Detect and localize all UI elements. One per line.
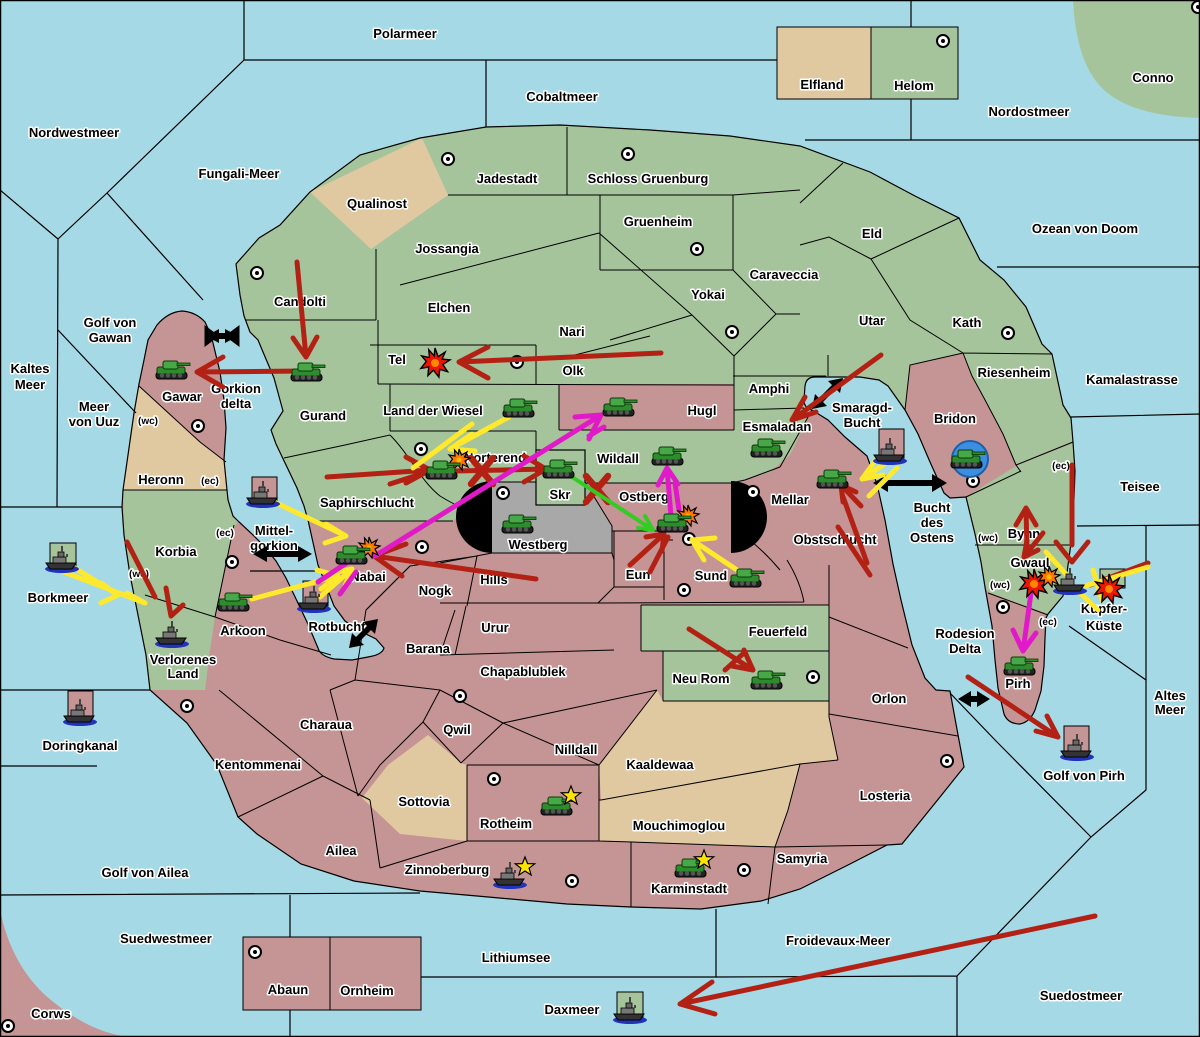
svg-text:Gwaul: Gwaul: [1010, 555, 1049, 570]
svg-text:Elchen: Elchen: [428, 300, 471, 315]
svg-text:Gawan: Gawan: [89, 330, 132, 345]
svg-text:Meer: Meer: [1155, 702, 1185, 717]
svg-text:Altes: Altes: [1154, 688, 1186, 703]
svg-text:Conno: Conno: [1132, 70, 1173, 85]
svg-text:Saphirschlucht: Saphirschlucht: [320, 495, 415, 510]
svg-text:Feuerfeld: Feuerfeld: [749, 624, 808, 639]
svg-text:Utar: Utar: [859, 313, 885, 328]
svg-text:Nilldall: Nilldall: [555, 742, 598, 757]
svg-text:Ornheim: Ornheim: [340, 983, 393, 998]
svg-text:Mittel-: Mittel-: [255, 523, 293, 538]
svg-text:Tel: Tel: [388, 352, 406, 367]
svg-text:Charaua: Charaua: [300, 717, 353, 732]
svg-text:Helom: Helom: [894, 78, 934, 93]
svg-text:Korbia: Korbia: [155, 544, 197, 559]
svg-text:Sottovia: Sottovia: [398, 794, 450, 809]
svg-text:Bridon: Bridon: [934, 411, 976, 426]
svg-text:Losteria: Losteria: [860, 788, 911, 803]
svg-text:Golf von: Golf von: [84, 315, 137, 330]
svg-text:Barana: Barana: [406, 641, 451, 656]
svg-text:(ec): (ec): [1052, 461, 1070, 472]
svg-text:Schloss Gruenburg: Schloss Gruenburg: [588, 171, 709, 186]
svg-text:Kamalastrasse: Kamalastrasse: [1086, 372, 1178, 387]
svg-text:Nogk: Nogk: [419, 583, 452, 598]
svg-text:Caraveccia: Caraveccia: [750, 267, 819, 282]
svg-text:Suedwestmeer: Suedwestmeer: [120, 931, 212, 946]
svg-text:Amphi: Amphi: [749, 381, 789, 396]
svg-text:Esmaladan: Esmaladan: [743, 419, 812, 434]
svg-text:Riesenheim: Riesenheim: [978, 365, 1051, 380]
svg-text:Skr: Skr: [550, 487, 571, 502]
svg-text:Smaragd-: Smaragd-: [832, 400, 892, 415]
svg-text:Jossangia: Jossangia: [415, 241, 479, 256]
svg-text:(ec): (ec): [201, 476, 219, 487]
svg-text:Urur: Urur: [481, 620, 508, 635]
svg-text:Wildall: Wildall: [597, 451, 639, 466]
svg-text:Karminstadt: Karminstadt: [651, 881, 728, 896]
svg-text:Zinnoberburg: Zinnoberburg: [405, 862, 490, 877]
svg-text:Fungali-Meer: Fungali-Meer: [199, 166, 280, 181]
svg-text:Gurand: Gurand: [300, 408, 346, 423]
svg-text:Land der Wiesel: Land der Wiesel: [383, 403, 483, 418]
svg-text:Rodesion: Rodesion: [935, 626, 994, 641]
svg-text:Ozean von Doom: Ozean von Doom: [1032, 221, 1138, 236]
svg-text:Bucht: Bucht: [844, 415, 882, 430]
svg-text:Kaaldewaa: Kaaldewaa: [626, 757, 694, 772]
svg-text:Westberg: Westberg: [509, 537, 568, 552]
svg-text:(wc): (wc): [990, 580, 1010, 591]
svg-text:Eld: Eld: [862, 226, 882, 241]
svg-text:Orlon: Orlon: [872, 691, 907, 706]
svg-text:Olk: Olk: [563, 363, 585, 378]
svg-text:Kentommenai: Kentommenai: [215, 757, 301, 772]
svg-text:Qualinost: Qualinost: [347, 196, 408, 211]
svg-text:Borkmeer: Borkmeer: [28, 590, 89, 605]
svg-text:(wc): (wc): [978, 533, 998, 544]
svg-text:Golf von Pirh: Golf von Pirh: [1043, 768, 1125, 783]
svg-text:Gawar: Gawar: [162, 389, 202, 404]
svg-text:Rotheim: Rotheim: [480, 816, 532, 831]
svg-text:delta: delta: [221, 396, 252, 411]
svg-text:Nordwestmeer: Nordwestmeer: [29, 125, 119, 140]
svg-text:Heronn: Heronn: [138, 472, 184, 487]
svg-text:Abaun: Abaun: [268, 982, 309, 997]
svg-text:Cobaltmeer: Cobaltmeer: [526, 89, 598, 104]
svg-text:Teisee: Teisee: [1120, 479, 1160, 494]
svg-text:Gruenheim: Gruenheim: [624, 214, 693, 229]
svg-text:(ec): (ec): [1039, 617, 1057, 628]
svg-text:Daxmeer: Daxmeer: [545, 1002, 600, 1017]
svg-text:Suedostmeer: Suedostmeer: [1040, 988, 1122, 1003]
svg-text:Bucht: Bucht: [914, 500, 952, 515]
svg-text:des: des: [921, 515, 943, 530]
svg-text:Ostens: Ostens: [910, 530, 954, 545]
svg-text:Ostberg: Ostberg: [619, 489, 669, 504]
svg-text:Eun: Eun: [626, 567, 651, 582]
svg-text:Hugl: Hugl: [688, 403, 717, 418]
svg-text:Froidevaux-Meer: Froidevaux-Meer: [786, 933, 890, 948]
svg-text:Verlorenes: Verlorenes: [150, 652, 217, 667]
svg-text:Obstschlucht: Obstschlucht: [793, 532, 877, 547]
svg-text:Nari: Nari: [559, 324, 584, 339]
svg-text:Neu Rom: Neu Rom: [672, 671, 729, 686]
svg-text:Lithiumsee: Lithiumsee: [482, 950, 551, 965]
svg-text:Corws: Corws: [31, 1006, 71, 1021]
svg-text:Sund: Sund: [695, 568, 728, 583]
svg-text:Delta: Delta: [949, 641, 982, 656]
svg-text:Ailea: Ailea: [325, 843, 357, 858]
svg-text:Jadestadt: Jadestadt: [477, 171, 538, 186]
svg-text:Doringkanal: Doringkanal: [42, 738, 117, 753]
svg-text:Meer: Meer: [15, 377, 45, 392]
svg-text:Kaltes: Kaltes: [10, 361, 49, 376]
svg-text:Küste: Küste: [1086, 618, 1122, 633]
svg-text:Samyria: Samyria: [777, 851, 828, 866]
svg-text:Qwil: Qwil: [443, 722, 470, 737]
svg-text:Land: Land: [167, 666, 198, 681]
svg-text:Mouchimoglou: Mouchimoglou: [633, 818, 725, 833]
svg-text:Elfland: Elfland: [800, 77, 843, 92]
svg-text:(wc): (wc): [138, 416, 158, 427]
svg-text:Mellar: Mellar: [771, 492, 809, 507]
svg-text:gorkion: gorkion: [250, 538, 298, 553]
svg-text:Pirh: Pirh: [1005, 676, 1030, 691]
svg-text:Nordostmeer: Nordostmeer: [989, 104, 1070, 119]
svg-text:Kath: Kath: [953, 315, 982, 330]
svg-text:Chapablublek: Chapablublek: [480, 664, 566, 679]
svg-text:Yokai: Yokai: [691, 287, 725, 302]
svg-text:Arkoon: Arkoon: [220, 623, 266, 638]
svg-text:von Uuz: von Uuz: [69, 414, 120, 429]
svg-text:Meer: Meer: [79, 399, 109, 414]
svg-text:(ec): (ec): [216, 528, 234, 539]
svg-text:Polarmeer: Polarmeer: [373, 26, 437, 41]
svg-text:Golf von Ailea: Golf von Ailea: [102, 865, 190, 880]
svg-text:Rotbucht: Rotbucht: [308, 619, 366, 634]
